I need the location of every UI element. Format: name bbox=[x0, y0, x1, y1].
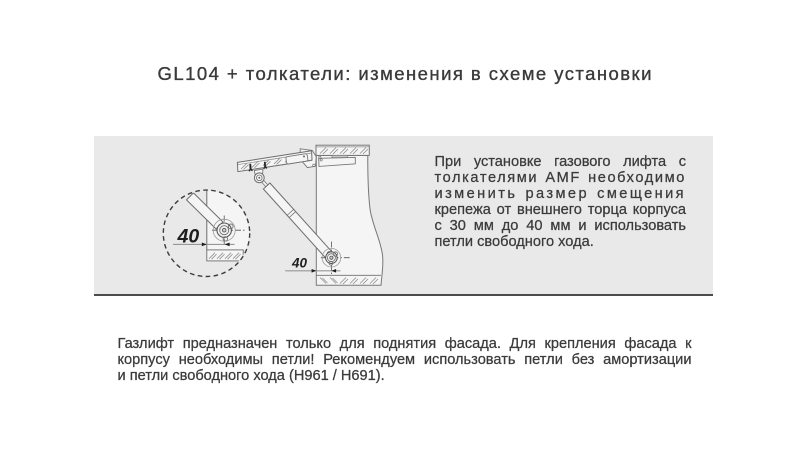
svg-text:40: 40 bbox=[291, 255, 308, 270]
